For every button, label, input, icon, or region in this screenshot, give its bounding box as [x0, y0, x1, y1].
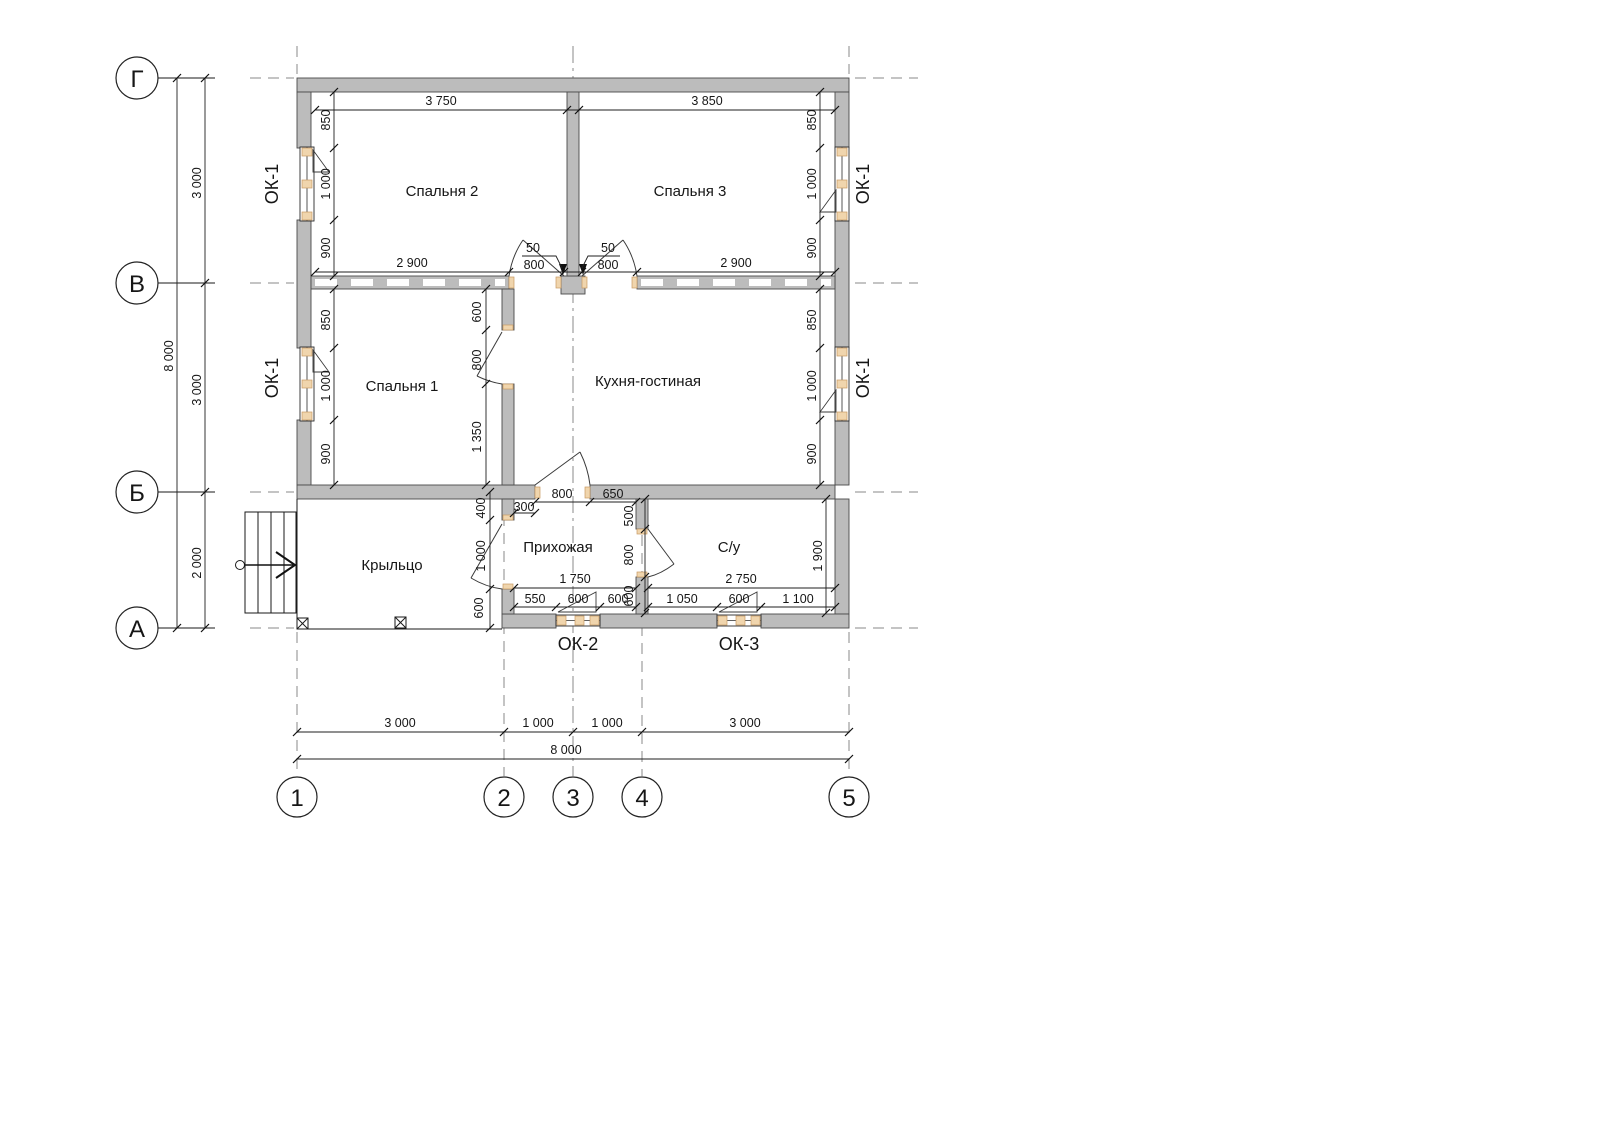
dim-label: 850 — [319, 110, 333, 131]
dim-label: 1 000 — [319, 370, 333, 401]
axis-col-label: 1 — [290, 785, 303, 812]
window-mark-ok2: ОК-2 — [558, 634, 599, 654]
dim-label: 650 — [603, 487, 624, 501]
porch-post-icon — [297, 618, 308, 629]
dim-label: 850 — [805, 110, 819, 131]
axis-grid-lines — [158, 46, 918, 776]
dim-label: 2 750 — [725, 572, 756, 586]
dim-label: 400 — [474, 498, 488, 519]
dim-label: 900 — [319, 444, 333, 465]
dim-label: 900 — [319, 238, 333, 259]
axis-row-label: А — [129, 616, 145, 643]
window-mark-ok1: ОК-1 — [262, 164, 282, 205]
wall-bath — [636, 499, 648, 529]
axis-col-label: 2 — [497, 785, 510, 812]
dim-label: 1 000 — [474, 540, 488, 571]
dim-label: 50 — [601, 241, 615, 255]
wall-left — [297, 220, 311, 348]
dim-label: 800 — [552, 487, 573, 501]
dim-label: 850 — [805, 310, 819, 331]
dim-label: 3 750 — [425, 94, 456, 108]
room-label-bedroom3: Спальня 3 — [654, 183, 727, 200]
room-label-hallway: Прихожая — [523, 539, 593, 556]
dim-label: 900 — [805, 238, 819, 259]
axis-row-label: Г — [131, 66, 144, 93]
dim-label: 8 000 — [162, 340, 176, 371]
dim-label: 850 — [319, 310, 333, 331]
dim-label: 8 000 — [550, 743, 581, 757]
wall-bedroom-partition — [567, 92, 579, 276]
dim-label: 800 — [524, 258, 545, 272]
wall-axis-b — [590, 485, 835, 499]
wall-hall-left — [502, 589, 514, 614]
dim-label: 600 — [608, 592, 629, 606]
dim-label: 600 — [568, 592, 589, 606]
wall-left — [297, 420, 311, 485]
dim-label: 3 000 — [190, 167, 204, 198]
wall-right — [835, 499, 849, 614]
wall-left — [297, 92, 311, 148]
dim-label: 1 100 — [782, 592, 813, 606]
window-mark-ok3: ОК-3 — [719, 634, 760, 654]
dim-label: 800 — [470, 350, 484, 371]
dim-label: 3 000 — [190, 374, 204, 405]
dim-label: 2 900 — [720, 256, 751, 270]
entry-arrow-icon — [236, 552, 296, 578]
dim-label: 1 050 — [666, 592, 697, 606]
dim-label: 500 — [622, 506, 636, 527]
wall-bedroom1 — [502, 289, 514, 330]
wall-top — [297, 78, 849, 92]
dim-label: 300 — [514, 500, 535, 514]
room-label-bedroom1: Спальня 1 — [366, 378, 439, 395]
axis-row-label: В — [129, 271, 145, 298]
porch-post-icon — [395, 617, 406, 628]
dim-label: 3 850 — [691, 94, 722, 108]
floor-plan-canvas: 3 000 3 000 2 000 8 000 3 750 3 850 2 90… — [0, 0, 1600, 1131]
window-ok1-icon — [820, 147, 849, 221]
axis-col-label: 3 — [566, 785, 579, 812]
axis-row-label: Б — [129, 480, 145, 507]
room-label-porch: Крыльцо — [361, 557, 422, 574]
window-mark-ok1: ОК-1 — [262, 358, 282, 399]
dim-label: 600 — [729, 592, 750, 606]
wall-stub — [561, 276, 585, 294]
wall-bottom — [502, 614, 556, 628]
room-label-kitchen: Кухня-гостиная — [595, 373, 701, 390]
wall-right — [835, 420, 849, 485]
dim-label: 1 350 — [470, 421, 484, 452]
window-mark-ok1: ОК-1 — [853, 358, 873, 399]
stairs-icon — [245, 512, 296, 613]
dim-label: 1 000 — [522, 716, 553, 730]
dim-label: 3 000 — [384, 716, 415, 730]
dim-label: 1 000 — [805, 168, 819, 199]
floor-plan-drawing: 3 000 3 000 2 000 8 000 3 750 3 850 2 90… — [0, 0, 1600, 1131]
dim-label: 2 000 — [190, 547, 204, 578]
dim-label: 1 750 — [559, 572, 590, 586]
dim-label: 1 900 — [811, 540, 825, 571]
wall-right — [835, 220, 849, 348]
dim-label: 600 — [472, 598, 486, 619]
dim-label: 50 — [526, 241, 540, 255]
dim-label: 1 000 — [591, 716, 622, 730]
dim-label: 2 900 — [396, 256, 427, 270]
room-label-bedroom2: Спальня 2 — [406, 183, 479, 200]
dim-label: 550 — [525, 592, 546, 606]
room-labels: Спальня 2 Спальня 3 Спальня 1 Кухня-гост… — [361, 183, 740, 574]
window-mark-ok1: ОК-1 — [853, 164, 873, 205]
room-label-bathroom: С/у — [718, 539, 741, 556]
window-ok1-icon — [820, 347, 849, 421]
dim-label: 600 — [470, 302, 484, 323]
dim-label: 1 000 — [319, 168, 333, 199]
axis-col-label: 4 — [635, 785, 648, 812]
wall-bottom — [761, 614, 849, 628]
axis-bubbles: Г В Б А 1 2 3 4 5 — [116, 57, 869, 817]
wall-bottom — [600, 614, 717, 628]
dim-label: 800 — [598, 258, 619, 272]
dim-label: 3 000 — [729, 716, 760, 730]
dim-label: 800 — [622, 545, 636, 566]
dim-label: 900 — [805, 444, 819, 465]
dim-label: 1 000 — [805, 370, 819, 401]
door-bathroom-icon — [637, 529, 674, 577]
wall-bedroom1 — [502, 384, 514, 485]
axis-col-label: 5 — [842, 785, 855, 812]
wall-right — [835, 92, 849, 148]
